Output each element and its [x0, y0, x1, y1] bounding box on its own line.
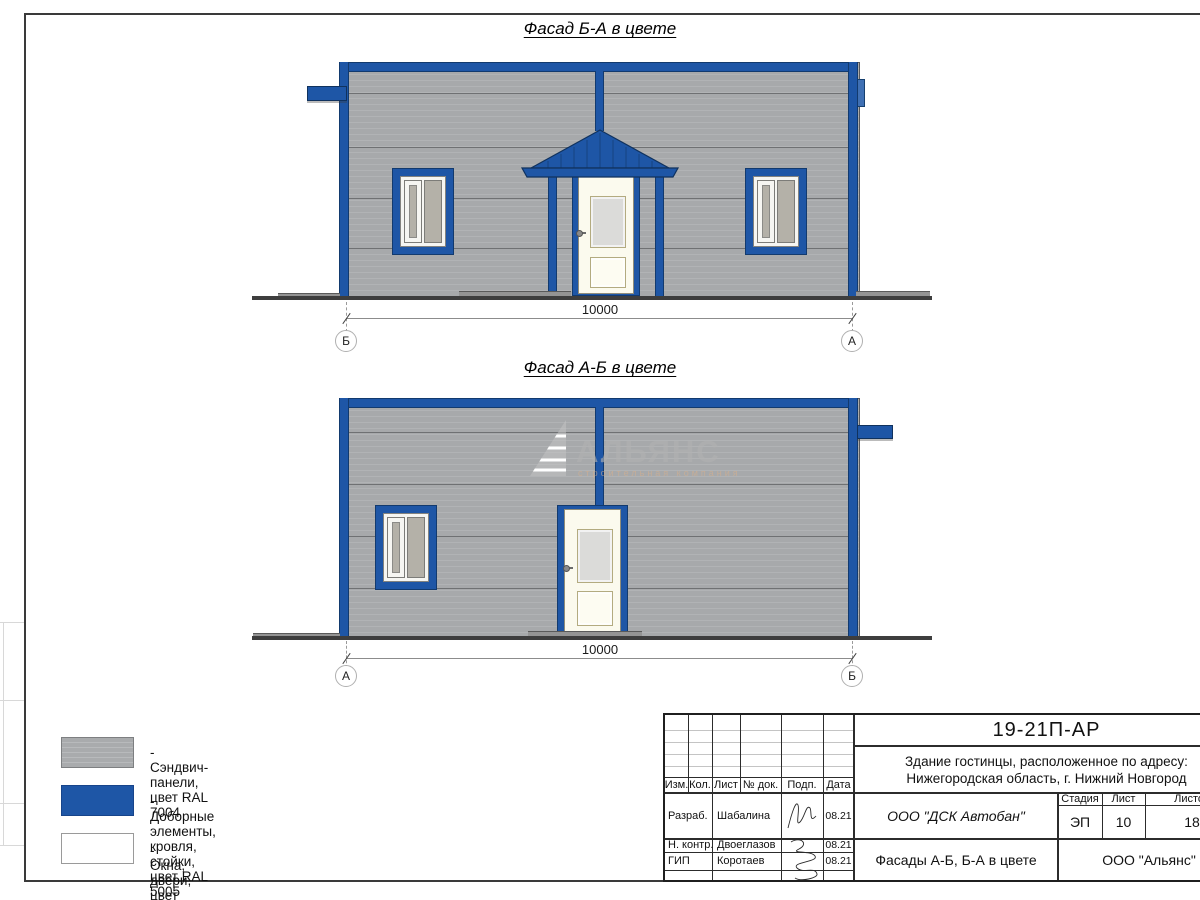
col-kol: Кол. — [688, 778, 712, 792]
signature-developer — [783, 794, 823, 838]
gutter-right — [857, 425, 893, 439]
window-frame — [400, 176, 446, 247]
name-ncontrol: Двоеглазов — [714, 838, 783, 852]
title-block: Изм. Кол. Лист № док. Подп. Дата Разраб.… — [663, 713, 1200, 882]
dimension-value: 10000 — [500, 642, 700, 657]
facade-ab-title: Фасад А-Б в цвете — [300, 358, 900, 378]
extension-line — [346, 641, 347, 668]
col-list: Лист — [712, 778, 740, 792]
legend-swatch-windows — [61, 833, 134, 864]
stage-value: ЭП — [1058, 806, 1102, 838]
sheets-header: Листов — [1145, 793, 1200, 805]
window-pane — [407, 517, 425, 578]
dimension-line — [346, 658, 852, 659]
gutter-left — [307, 86, 347, 101]
facade-ba-title: Фасад Б-А в цвете — [300, 19, 900, 39]
window-pane — [777, 180, 795, 243]
legend-label-windows: - Окна, двери, цвет RAL 9003 — [150, 843, 191, 900]
role-developer: Разраб. — [665, 794, 715, 838]
role-gip: ГИП — [665, 852, 715, 870]
date-ncontrol: 08.21 — [823, 838, 854, 852]
dimension-value: 10000 — [500, 302, 700, 317]
axis-marker-left: А — [335, 665, 357, 687]
door-handle — [565, 567, 573, 569]
window-left — [392, 168, 454, 255]
corner-post-left — [339, 398, 349, 636]
role-ncontrol: Н. контр. — [665, 838, 715, 852]
company-bottom: ООО "Альянс" — [1059, 840, 1200, 880]
axis-marker-right: Б — [841, 665, 863, 687]
address-line-2: Нижегородская область, г. Нижний Новгоро… — [905, 770, 1188, 787]
watermark-sail-logo — [520, 414, 572, 480]
col-ndok: № док. — [740, 778, 781, 792]
door-panel — [577, 591, 613, 626]
watermark-subtitle: строительная компания — [578, 468, 741, 478]
corner-post-right — [848, 62, 858, 296]
door-handle — [578, 232, 586, 234]
window-left — [375, 505, 437, 590]
sheets-value: 18 — [1145, 806, 1200, 838]
legend-swatch-panels — [61, 737, 134, 768]
ground-line — [252, 636, 932, 640]
dimension-line — [346, 318, 852, 319]
entrance-canopy-roof — [515, 124, 685, 179]
side-table-line — [0, 845, 24, 846]
window-frame — [383, 513, 429, 582]
name-gip: Коротаев — [714, 852, 783, 870]
canopy-post-left — [548, 176, 557, 296]
company-top: ООО "ДСК Автобан" — [855, 794, 1057, 838]
stage-header: Стадия — [1058, 793, 1102, 805]
window-right — [745, 168, 807, 255]
sheet-title: Фасады А-Б, Б-А в цвете — [855, 840, 1057, 880]
doc-number: 19-21П-АР — [854, 715, 1200, 745]
window-sash — [387, 517, 405, 578]
drawing-sheet: Фасад Б-А в цвете — [0, 0, 1200, 900]
col-data: Дата — [823, 778, 854, 792]
door-panel — [590, 257, 626, 288]
door-glass — [577, 529, 613, 583]
center-joint-strip — [595, 71, 604, 131]
col-izm: Изм. — [665, 778, 688, 792]
watermark-name: АЛЬЯНС — [576, 434, 721, 470]
company-watermark: АЛЬЯНС строительная компания — [520, 412, 750, 482]
project-address: Здание гостинцы, расположенное по адресу… — [854, 747, 1200, 792]
address-line-1: Здание гостинцы, расположенное по адресу… — [905, 753, 1188, 770]
window-pane — [424, 180, 442, 243]
date-gip: 08.21 — [823, 852, 854, 870]
sheet-header: Лист — [1102, 793, 1145, 805]
window-frame — [753, 176, 799, 247]
ground-line — [252, 296, 932, 300]
extension-line — [852, 641, 853, 668]
entrance-door — [578, 175, 634, 294]
col-podp: Подп. — [781, 778, 823, 792]
name-developer: Шабалина — [714, 794, 783, 838]
sheet-value: 10 — [1102, 806, 1145, 838]
canopy-post-right — [655, 176, 664, 296]
side-table-line — [3, 622, 4, 845]
door-glass — [590, 196, 626, 248]
date-developer: 08.21 — [823, 794, 854, 838]
window-sash — [404, 180, 422, 243]
entrance-door — [564, 509, 621, 633]
axis-marker-right: А — [841, 330, 863, 352]
axis-marker-left: Б — [335, 330, 357, 352]
signature-ncontrol-gip — [781, 836, 823, 882]
legend-swatch-trim — [61, 785, 134, 816]
window-sash — [757, 180, 775, 243]
